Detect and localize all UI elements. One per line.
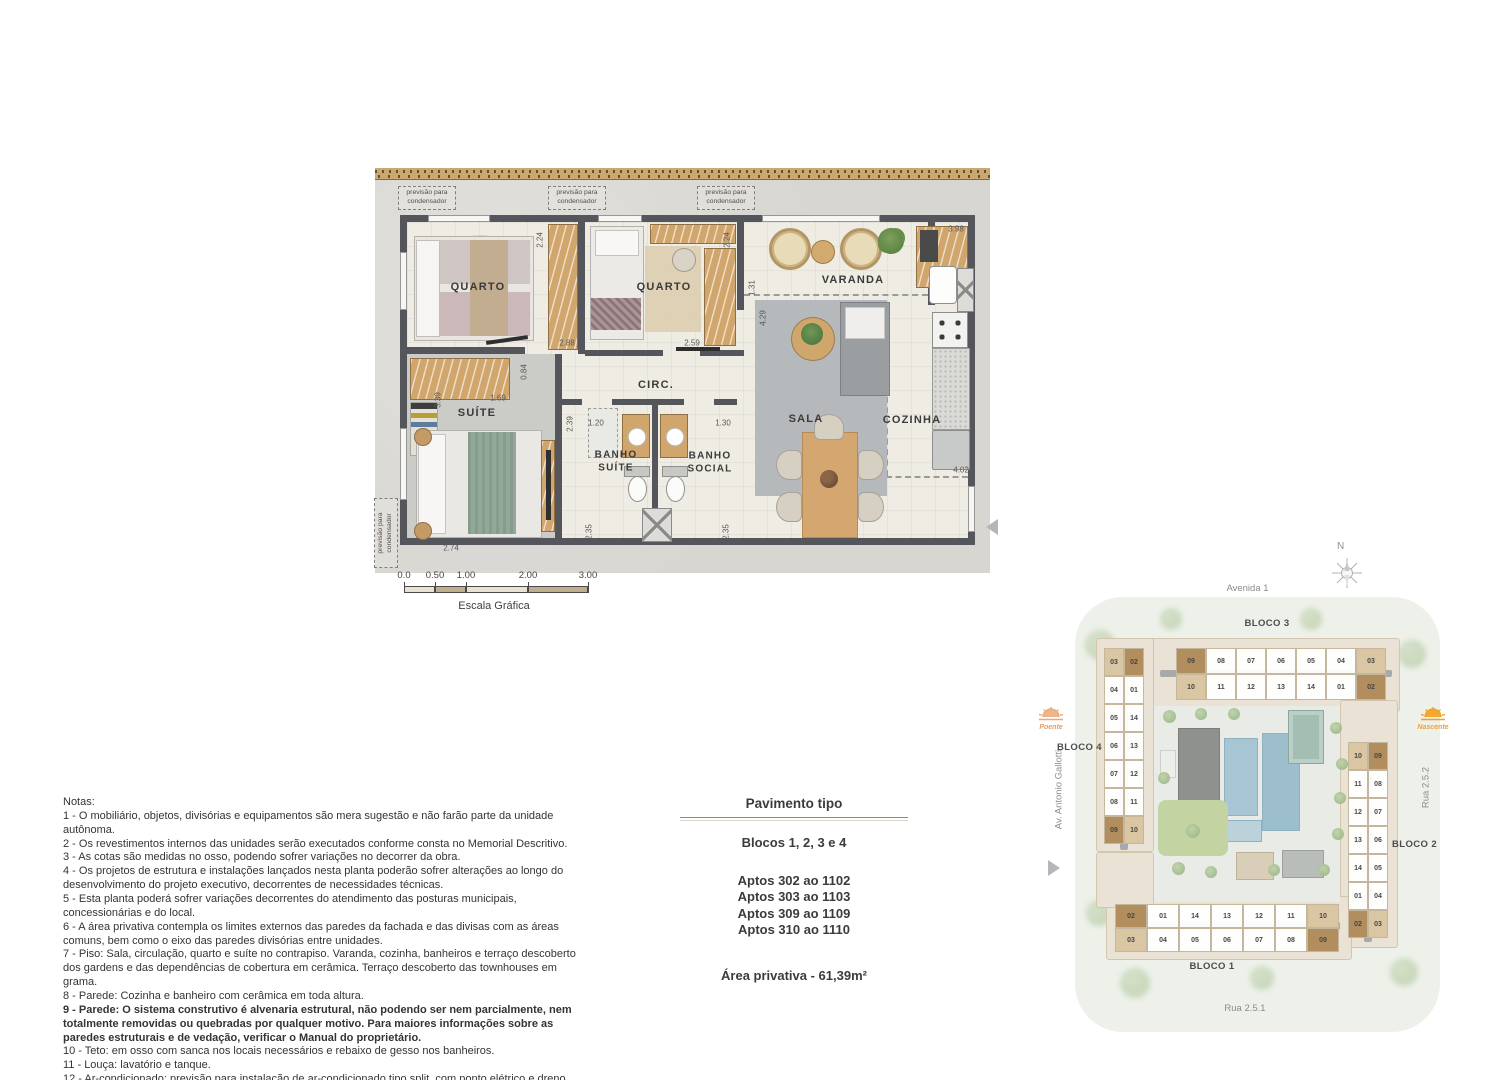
note-item: 12 - Ar-condicionado: previsão para inst… xyxy=(63,1073,583,1080)
unit-cell: 09 xyxy=(1307,928,1339,952)
fridge xyxy=(932,430,970,470)
dim-label: 3.39 xyxy=(434,392,443,408)
notes-title: Notas: xyxy=(63,796,583,810)
bed-throw xyxy=(591,298,641,330)
aptos-line: Aptos 303 ao 1103 xyxy=(680,889,908,905)
condenser-box: previsão para condensador xyxy=(398,186,456,210)
page: previsão para condensador previsão para … xyxy=(0,0,1512,1080)
aptos-line: Aptos 309 ao 1109 xyxy=(680,906,908,922)
bloco4-bloco1-connector xyxy=(1096,852,1154,908)
tree xyxy=(1332,828,1344,840)
dim-label: 1.31 xyxy=(748,280,757,296)
window xyxy=(400,252,407,310)
wall xyxy=(612,399,684,405)
grill xyxy=(920,230,938,262)
shaft xyxy=(957,268,974,312)
tree xyxy=(1318,864,1330,876)
bloco3-units-bottom: 10111213140102 xyxy=(1176,674,1386,700)
sports-court xyxy=(1288,710,1324,764)
toilet xyxy=(666,476,685,502)
tree xyxy=(1268,864,1280,876)
unit-cell: 10 xyxy=(1124,816,1144,844)
tree xyxy=(1163,710,1176,723)
dim-label: 0.84 xyxy=(520,364,529,380)
condenser-box: previsão para condensador xyxy=(548,186,606,210)
room-label-circ: CIRC. xyxy=(638,379,674,393)
pavimento-info: Pavimento tipo Blocos 1, 2, 3 e 4 Aptos … xyxy=(680,796,908,984)
unit-cell: 10 xyxy=(1307,904,1339,928)
gym-deck xyxy=(1282,850,1324,878)
blocos-line: Blocos 1, 2, 3 e 4 xyxy=(680,835,908,851)
sun-label-nascente: Nascente xyxy=(1417,724,1448,731)
bed-pillow xyxy=(595,230,639,256)
dim-label: 2.35 xyxy=(722,524,731,540)
unit-cell: 12 xyxy=(1243,904,1275,928)
scale-segment xyxy=(528,586,588,593)
tree xyxy=(1390,958,1418,986)
dim-label: 2.88 xyxy=(559,339,575,348)
note-item: 4 - Os projetos de estrutura e instalaçõ… xyxy=(63,865,583,893)
unit-cell: 07 xyxy=(1236,648,1266,674)
unit-cell: 06 xyxy=(1211,928,1243,952)
unit-cell: 10 xyxy=(1348,742,1368,770)
varanda-sala-boundary xyxy=(744,294,928,296)
armchair xyxy=(840,228,882,270)
unit-cell: 02 xyxy=(1124,648,1144,676)
window xyxy=(428,215,490,222)
sun-icon-poente xyxy=(1038,706,1064,722)
tree xyxy=(1336,758,1348,770)
dim-label: 3.98 xyxy=(948,225,964,234)
tree xyxy=(1228,708,1240,720)
dim-label: 2.24 xyxy=(536,232,545,248)
compass-north-label: N xyxy=(1337,541,1344,552)
unit-cell: 07 xyxy=(1368,798,1388,826)
condenser-note: previsão para condensador xyxy=(698,189,754,207)
unit-cell: 02 xyxy=(1348,910,1368,938)
note-item: 11 - Louça: lavatório e tanque. xyxy=(63,1059,583,1073)
window xyxy=(400,428,407,500)
bloco2-label: BLOCO 2 xyxy=(1392,839,1452,850)
unit-cell: 01 xyxy=(1124,676,1144,704)
street-label-gallotti: Av. Antonio Gallotti xyxy=(1054,747,1065,833)
wall xyxy=(585,350,663,356)
bloco2-units-right: 09080706050403 xyxy=(1368,742,1388,938)
tree xyxy=(1330,722,1342,734)
unit-cell: 05 xyxy=(1296,648,1326,674)
unit-cell: 06 xyxy=(1104,732,1124,760)
room-label-banho-social: BANHO SOCIAL xyxy=(684,451,736,476)
street-label-rua252: Rua 2.5.2 xyxy=(1421,760,1432,816)
dim-label: 2.24 xyxy=(723,232,732,248)
unit-cell: 12 xyxy=(1236,674,1266,700)
unit-cell: 01 xyxy=(1147,904,1179,928)
scale-segment xyxy=(466,586,528,593)
wall xyxy=(714,399,737,405)
scale-tick: 0.50 xyxy=(426,570,445,581)
unit-cell: 13 xyxy=(1211,904,1243,928)
unit-cell: 03 xyxy=(1356,648,1386,674)
wall xyxy=(578,222,585,354)
shaft xyxy=(642,508,672,542)
unit-cell: 04 xyxy=(1147,928,1179,952)
unit-cell: 12 xyxy=(1124,760,1144,788)
condenser-note: previsão para condensador xyxy=(549,189,605,207)
unit-cell: 04 xyxy=(1326,648,1356,674)
dim-label: 2.39 xyxy=(566,416,575,432)
unit-cell: 09 xyxy=(1368,742,1388,770)
room-label-cozinha: COZINHA xyxy=(883,414,942,428)
daybed-pillows xyxy=(845,307,885,339)
dim-label: 1.20 xyxy=(588,419,604,428)
dim-label: 2.74 xyxy=(443,544,459,553)
aptos-line: Aptos 302 ao 1102 xyxy=(680,873,908,889)
unit-cell: 13 xyxy=(1124,732,1144,760)
scale-segment xyxy=(435,586,466,593)
note-item: 3 - As cotas são medidas no osso, podend… xyxy=(63,851,583,865)
tree xyxy=(1250,966,1274,990)
note-item: 10 - Teto: em osso com sanca nos locais … xyxy=(63,1045,583,1059)
unit-cell: 09 xyxy=(1176,648,1206,674)
unit-cell: 05 xyxy=(1179,928,1211,952)
unit-cell: 14 xyxy=(1348,854,1368,882)
tree xyxy=(1398,640,1426,668)
compass-icon xyxy=(1330,556,1364,590)
condenser-box: previsão para condensador xyxy=(697,186,755,210)
wall xyxy=(555,354,562,538)
unit-cell: 14 xyxy=(1124,704,1144,732)
scale-bar-label: Escala Gráfica xyxy=(398,600,590,612)
sun-icon-nascente xyxy=(1420,706,1446,722)
bloco4-units-right: 02011413121110 xyxy=(1124,648,1144,844)
unit-cell: 13 xyxy=(1348,826,1368,854)
pool xyxy=(1224,738,1258,816)
unit-cell: 08 xyxy=(1104,788,1124,816)
room-label-quarto2: QUARTO xyxy=(637,281,692,295)
scale-tick: 2.00 xyxy=(519,570,538,581)
unit-cell: 11 xyxy=(1206,674,1236,700)
nightstand xyxy=(414,428,432,446)
wall xyxy=(400,538,975,545)
note-item-structural: 9 - Parede: O sistema construtivo é alve… xyxy=(63,1004,583,1046)
varanda-rail xyxy=(762,215,880,222)
street-label-avenida1: Avenida 1 xyxy=(1200,583,1295,594)
scale-tick: 0.0 xyxy=(397,570,410,581)
unit-cell: 08 xyxy=(1368,770,1388,798)
unit-cell: 11 xyxy=(1348,770,1368,798)
unit-cell: 08 xyxy=(1206,648,1236,674)
room-label-sala: SALA xyxy=(789,413,824,427)
dining-chair xyxy=(776,450,802,480)
bloco3-label: BLOCO 3 xyxy=(1227,618,1307,629)
bed-throw-green xyxy=(468,432,516,534)
tree xyxy=(1120,968,1150,998)
sun-label-poente: Poente xyxy=(1039,724,1062,731)
room-label-quarto1: QUARTO xyxy=(451,281,506,295)
room-label-varanda: VARANDA xyxy=(822,274,885,288)
condenser-note: previsão para condensador xyxy=(377,499,395,567)
unit-cell: 11 xyxy=(1275,904,1307,928)
dining-chair xyxy=(858,450,884,480)
unit-cell: 03 xyxy=(1368,910,1388,938)
unit-cell: 02 xyxy=(1115,904,1147,928)
plant xyxy=(878,228,904,254)
tree xyxy=(1160,608,1182,630)
bench xyxy=(676,347,720,351)
wardrobe xyxy=(548,224,578,350)
divider xyxy=(680,817,908,821)
plan-top-border xyxy=(375,168,990,180)
armchair xyxy=(769,228,811,270)
window xyxy=(598,215,642,222)
tree xyxy=(1205,866,1217,878)
unit-cell: 09 xyxy=(1104,816,1124,844)
clubhouse-building xyxy=(1178,728,1220,804)
unit-cell: 01 xyxy=(1348,882,1368,910)
note-item: 8 - Parede: Cozinha e banheiro com cerâm… xyxy=(63,990,583,1004)
unit-cell: 02 xyxy=(1356,674,1386,700)
unit-cell: 01 xyxy=(1326,674,1356,700)
note-item: 1 - O mobiliário, objetos, divisórias e … xyxy=(63,810,583,838)
tree xyxy=(1158,772,1170,784)
unit-cell: 03 xyxy=(1104,648,1124,676)
unit-cell: 10 xyxy=(1176,674,1206,700)
apartment-entrance-arrow-icon xyxy=(986,519,998,535)
dim-label: 1.30 xyxy=(715,419,731,428)
desk-chair xyxy=(672,248,696,272)
dim-label: 2.35 xyxy=(585,524,594,540)
notes: Notas: 1 - O mobiliário, objetos, divisó… xyxy=(63,796,583,1080)
condenser-note: previsão para condensador xyxy=(399,189,455,207)
tree xyxy=(1172,862,1185,875)
condenser-box: previsão para condensador xyxy=(374,498,398,568)
note-item: 5 - Esta planta poderá sofrer variações … xyxy=(63,893,583,921)
unit-cell: 07 xyxy=(1104,760,1124,788)
entry-door-opening xyxy=(968,486,975,532)
bed-pillows xyxy=(416,240,440,337)
nightstand xyxy=(414,522,432,540)
bloco1-label: BLOCO 1 xyxy=(1172,961,1252,972)
kids-pool xyxy=(1224,820,1262,842)
unit-cell: 04 xyxy=(1104,676,1124,704)
unit-cell: 06 xyxy=(1368,826,1388,854)
area-privativa: Área privativa - 61,39m² xyxy=(680,968,908,984)
aptos-line: Aptos 310 ao 1110 xyxy=(680,922,908,938)
note-item: 7 - Piso: Sala, circulação, quarto e suí… xyxy=(63,948,583,990)
site-entrance-arrow-icon xyxy=(1048,860,1060,876)
unit-cell: 04 xyxy=(1368,882,1388,910)
note-item: 6 - A área privativa contempla os limite… xyxy=(63,921,583,949)
scale-bar: 0.0 0.50 1.00 2.00 3.00 Escala Gráfica xyxy=(398,570,608,616)
room-label-suite: SUÍTE xyxy=(458,407,496,421)
unit-cell: 08 xyxy=(1275,928,1307,952)
dim-label: 4.29 xyxy=(759,310,768,326)
note-item: 2 - Os revestimentos internos das unidad… xyxy=(63,838,583,852)
tv xyxy=(546,450,551,520)
table-centerpiece xyxy=(820,470,838,488)
bloco1-units-bottom: 03040506070809 xyxy=(1115,928,1339,952)
unit-cell: 03 xyxy=(1115,928,1147,952)
bed-pillows xyxy=(418,434,446,534)
stove xyxy=(932,312,968,348)
unit-cell: 12 xyxy=(1348,798,1368,826)
dining-chair xyxy=(858,492,884,522)
scale-tick: 1.00 xyxy=(457,570,476,581)
bloco1-units-top: 02011413121110 xyxy=(1115,904,1339,928)
unit-cell: 05 xyxy=(1368,854,1388,882)
scale-tick-mark xyxy=(588,582,589,593)
unit-cell: 14 xyxy=(1179,904,1211,928)
washtub xyxy=(929,266,957,304)
scale-tick: 3.00 xyxy=(579,570,598,581)
tree xyxy=(1195,708,1207,720)
bloco4-units-left: 03040506070809 xyxy=(1104,648,1124,844)
unit-cell: 11 xyxy=(1124,788,1144,816)
wall xyxy=(737,222,744,310)
bloco3-units-top: 09080706050403 xyxy=(1176,648,1386,674)
dim-label: 2.59 xyxy=(684,339,700,348)
scale-segment xyxy=(404,586,435,593)
dining-chair xyxy=(776,492,802,522)
wardrobe xyxy=(704,248,736,346)
toilet xyxy=(628,476,647,502)
dim-label: 4.02 xyxy=(953,466,969,475)
plant xyxy=(801,323,823,345)
pavimento-title: Pavimento tipo xyxy=(680,796,908,813)
coffee-table xyxy=(811,240,835,264)
tree xyxy=(1334,792,1346,804)
room-label-banho-suite: BANHO SUÍTE xyxy=(590,450,642,475)
unit-cell: 14 xyxy=(1296,674,1326,700)
wall xyxy=(400,347,525,354)
unit-cell: 06 xyxy=(1266,648,1296,674)
dim-label: 1.69 xyxy=(490,394,506,403)
bloco2-units-left: 10111213140102 xyxy=(1348,742,1368,938)
unit-cell: 05 xyxy=(1104,704,1124,732)
cozinha-boundary xyxy=(886,476,968,478)
street-label-rua251: Rua 2.5.1 xyxy=(1200,1003,1290,1014)
wall xyxy=(562,399,582,405)
unit-cell: 07 xyxy=(1243,928,1275,952)
unit-cell: 13 xyxy=(1266,674,1296,700)
tree xyxy=(1186,824,1200,838)
